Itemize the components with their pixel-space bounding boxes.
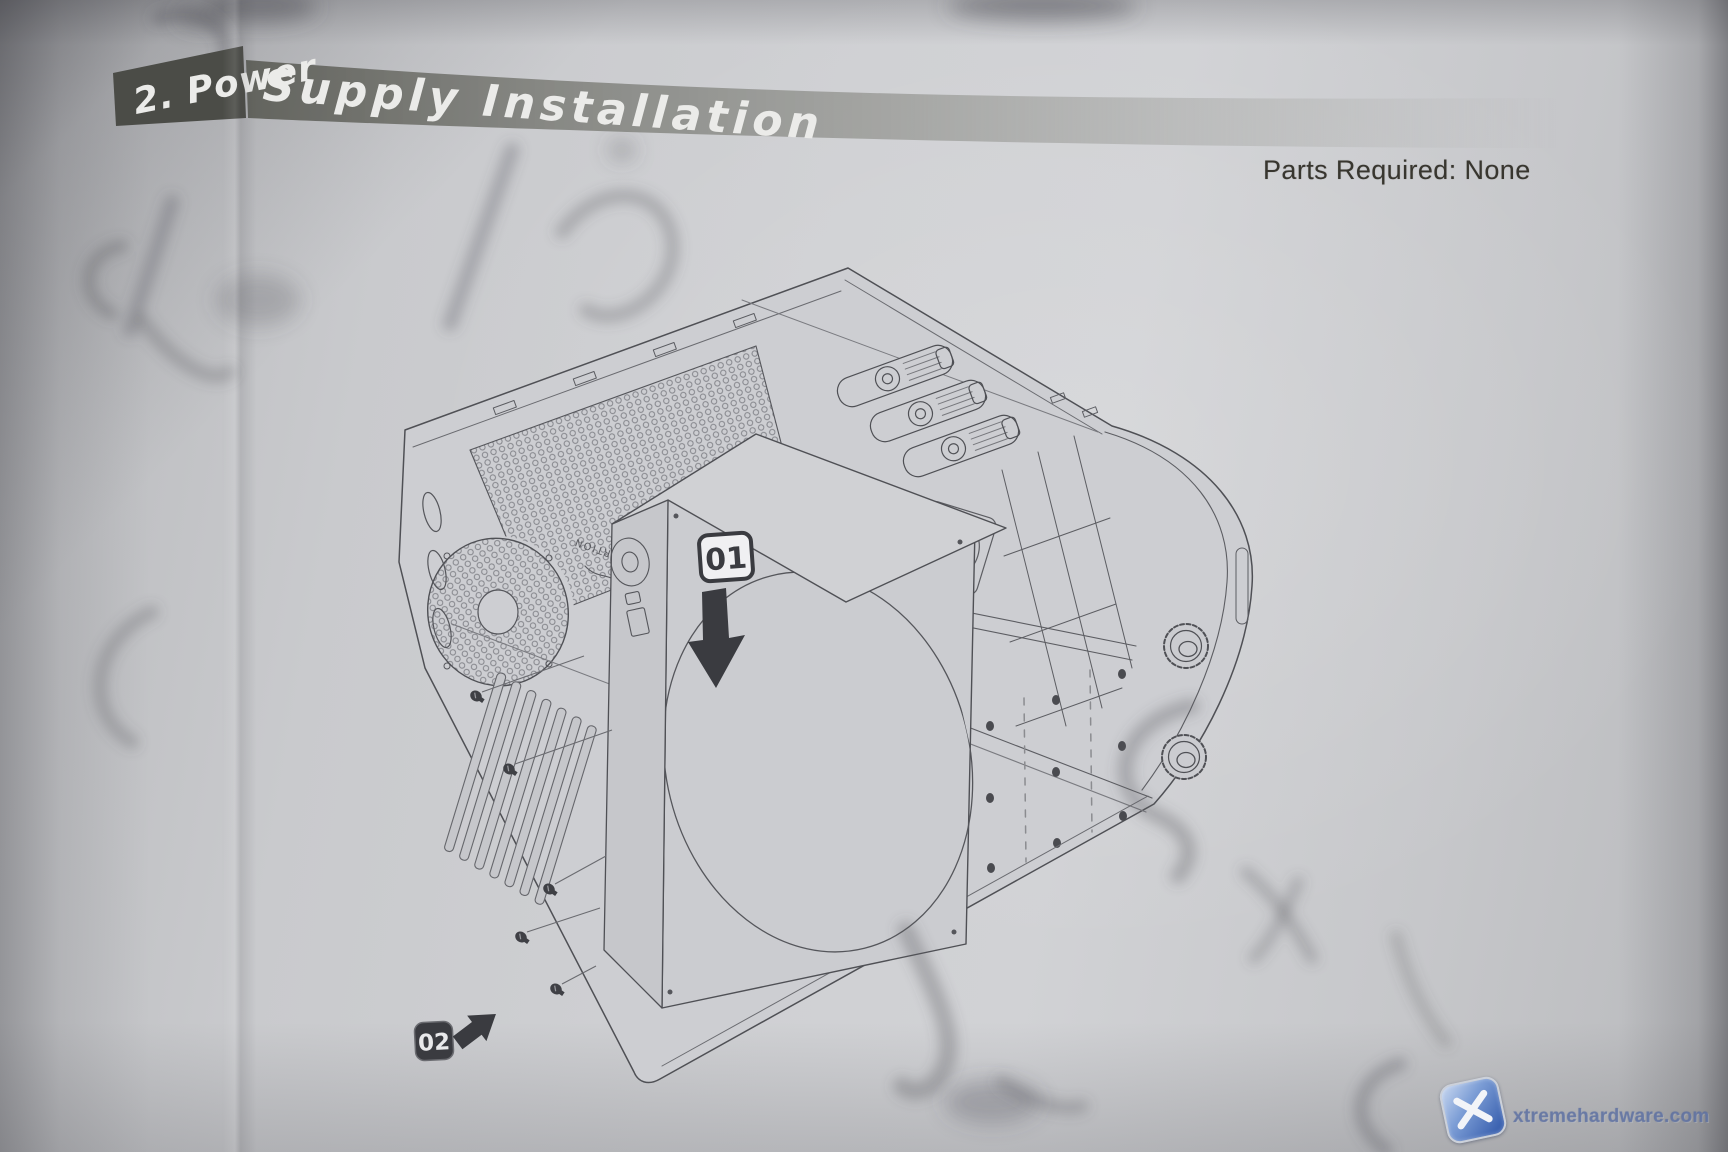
psu-rear-face	[604, 498, 668, 1008]
step-02-badge: 02	[414, 1021, 454, 1061]
title-banner: 2. Power Supply Installation	[113, 46, 1560, 150]
watermark: xtremehardware.com	[1443, 1080, 1710, 1140]
step-01-badge: 01	[698, 532, 753, 582]
watermark-site-text: xtremehardware.com	[1513, 1106, 1710, 1128]
case-foot	[1162, 735, 1206, 779]
step-02-arrow	[448, 1001, 506, 1055]
psu-box	[604, 434, 1012, 1008]
svg-text:02: 02	[417, 1029, 450, 1057]
watermark-x-icon	[1437, 1074, 1508, 1145]
svg-text:01: 01	[704, 541, 748, 579]
parts-required-label: Parts Required: None	[1263, 155, 1531, 186]
case-foot	[1164, 624, 1208, 668]
banner-title-part2: Supply Installation	[261, 60, 825, 150]
manual-page-photo: TOP PORTION	[0, 0, 1728, 1152]
